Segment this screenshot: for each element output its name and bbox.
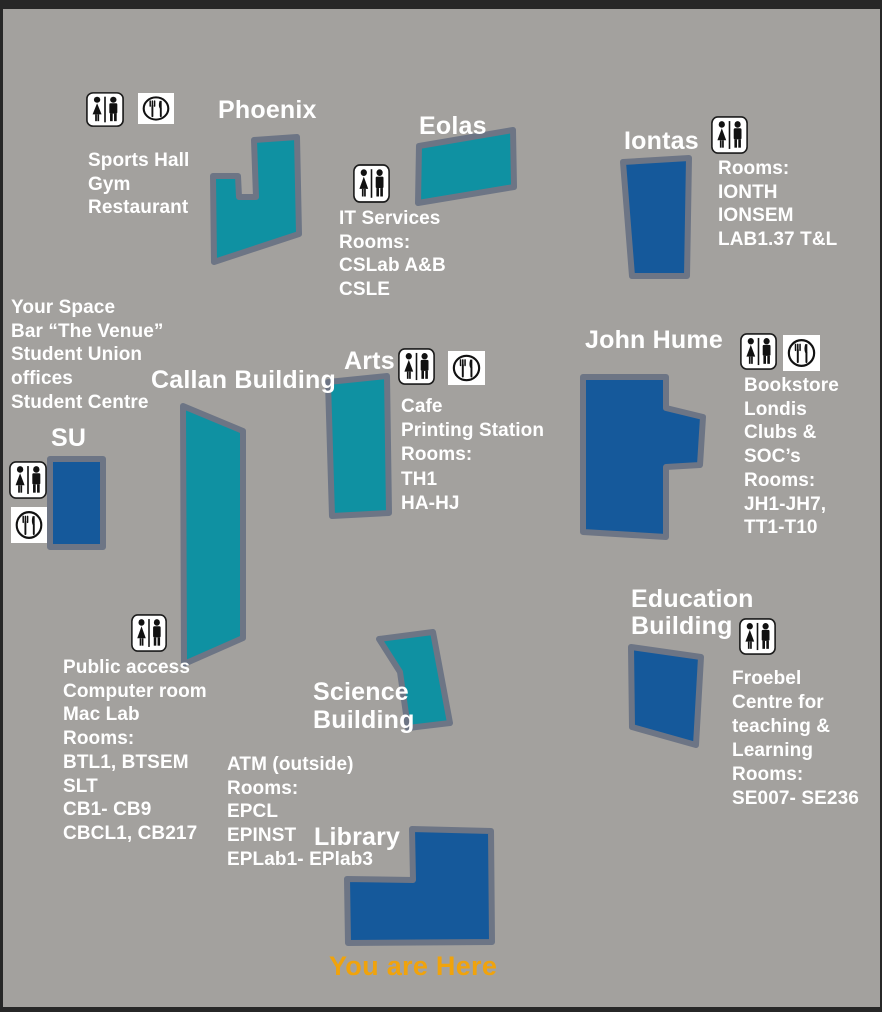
eolas-info: IT Services Rooms: CSLab A&B CSLE xyxy=(339,207,446,302)
john-hume-title: John Hume xyxy=(585,326,723,354)
eolas-title: Eolas xyxy=(419,112,487,140)
education-building-shape xyxy=(631,647,701,745)
restroom-icon xyxy=(86,92,124,127)
iontas-building-shape xyxy=(623,158,689,276)
restroom-icon xyxy=(740,333,777,370)
arts-info: Cafe Printing Station Rooms: TH1 HA-HJ xyxy=(401,395,544,516)
phoenix-title: Phoenix xyxy=(218,96,317,124)
phoenix-building-shape xyxy=(213,137,299,262)
su-building-shape xyxy=(50,459,103,547)
restaurant-icon xyxy=(448,351,485,385)
restroom-icon xyxy=(711,116,748,154)
restaurant-icon xyxy=(11,507,47,543)
su-info: Your Space Bar “The Venue” Student Union… xyxy=(11,296,164,415)
callan-title: Callan Building xyxy=(151,366,336,394)
restroom-icon xyxy=(131,614,167,652)
callan-building-shape xyxy=(183,406,243,664)
restroom-icon xyxy=(9,461,47,499)
restroom-icon xyxy=(353,164,390,203)
iontas-info: Rooms: IONTH IONSEM LAB1.37 T&L xyxy=(718,157,837,252)
science-info: ATM (outside) Rooms: EPCL EPINST EPLab1-… xyxy=(227,753,373,872)
you-are-here-label: You are Here xyxy=(329,951,497,982)
education-info: Froebel Centre for teaching & Learning R… xyxy=(732,667,859,811)
arts-building-shape xyxy=(328,376,389,516)
restroom-icon xyxy=(398,348,435,385)
arts-title: Arts xyxy=(344,347,395,375)
su-title: SU xyxy=(51,424,86,452)
campus-map: Phoenix Eolas Iontas Callan Building Art… xyxy=(0,0,882,1012)
restroom-icon xyxy=(739,618,776,655)
eolas-building-shape xyxy=(418,130,514,203)
science-title: Science Building xyxy=(313,678,415,734)
callan-info: Public access Computer room Mac Lab Room… xyxy=(63,656,207,846)
iontas-title: Iontas xyxy=(624,127,699,155)
john-hume-building-shape xyxy=(583,377,703,537)
education-title: Education Building xyxy=(631,586,754,640)
restaurant-icon xyxy=(138,93,174,124)
restaurant-icon xyxy=(783,335,820,371)
john-hume-info: Bookstore Londis Clubs & SOC’s Rooms: JH… xyxy=(744,374,839,540)
phoenix-info: Sports Hall Gym Restaurant xyxy=(88,149,189,220)
